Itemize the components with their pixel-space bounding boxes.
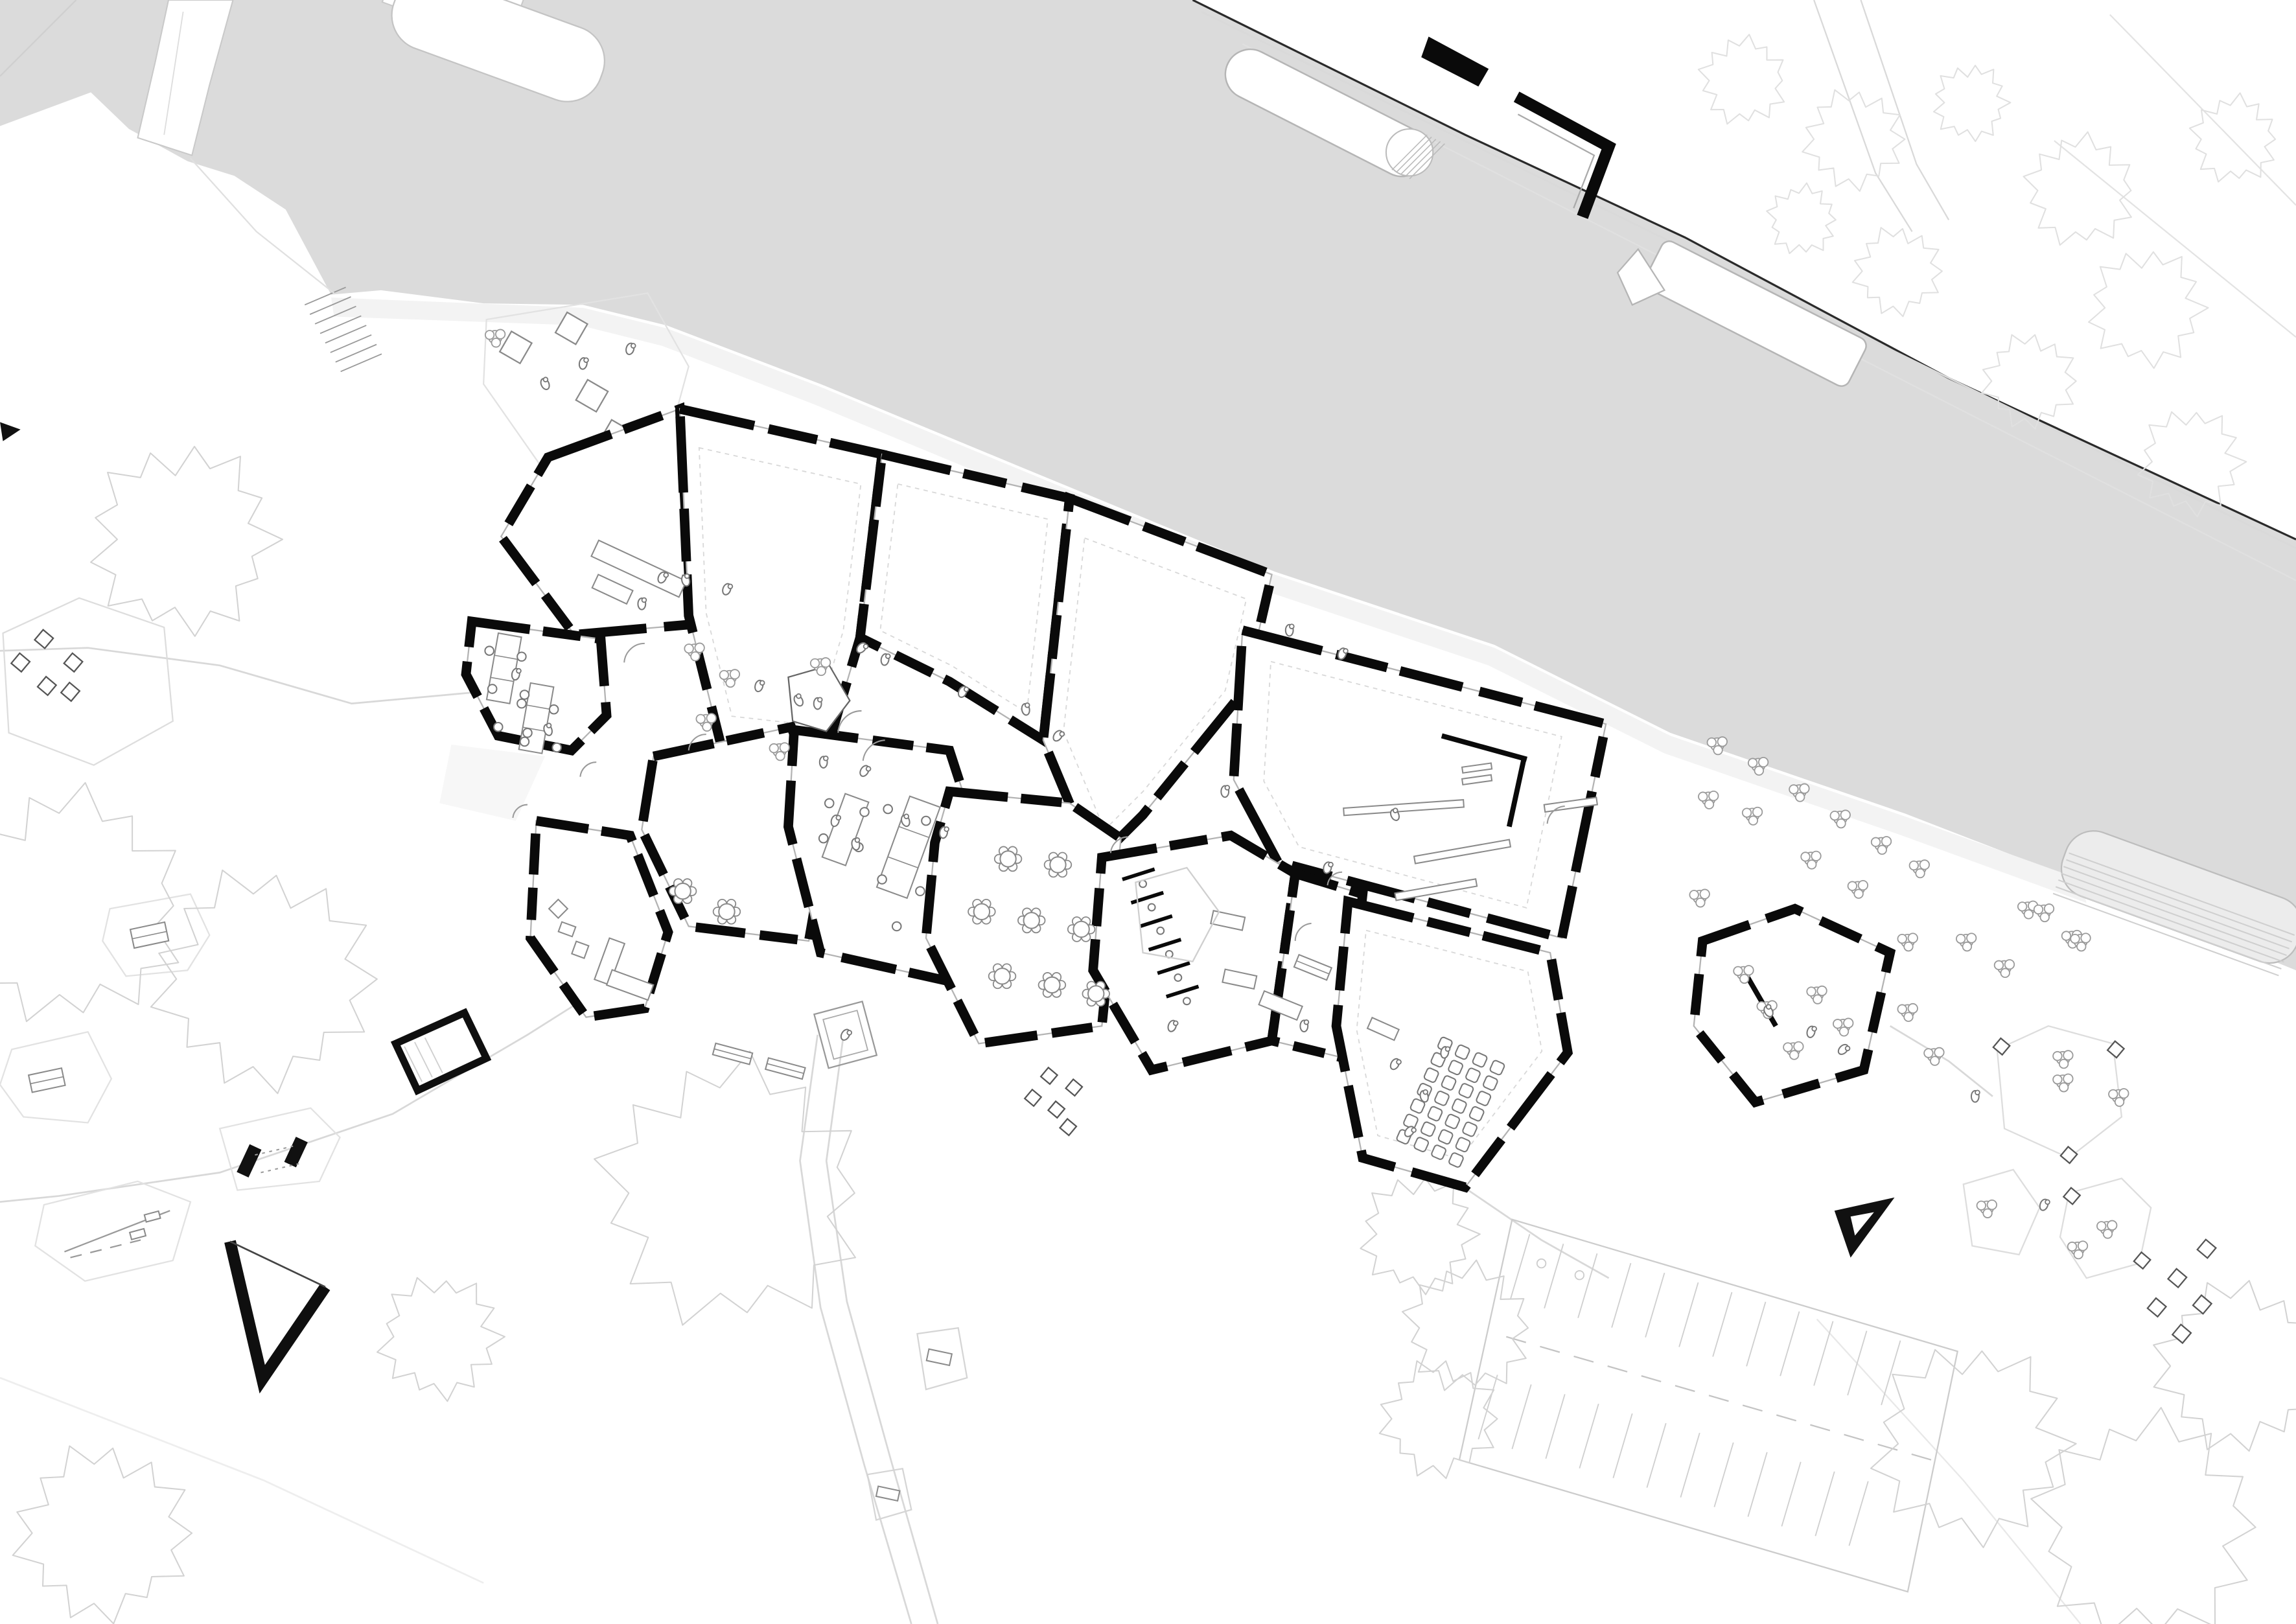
furniture <box>145 1211 161 1222</box>
bush-circle <box>2077 942 2086 951</box>
bush-circle <box>2063 1074 2072 1083</box>
bush-circle <box>702 723 712 732</box>
parking-stalls <box>1679 1282 1698 1347</box>
bush-circle <box>2109 1090 2118 1099</box>
person <box>1286 624 1294 636</box>
stepping-diamond <box>34 630 53 649</box>
bush <box>2034 904 2054 922</box>
stepping-diamond <box>1025 1089 1041 1106</box>
bush-circle <box>730 669 739 679</box>
bush-circle <box>2053 1052 2062 1061</box>
bush-circle <box>1807 860 1816 869</box>
wc-fixture <box>1174 974 1181 981</box>
bush-circle <box>1844 1018 1853 1027</box>
bush <box>2097 1221 2117 1238</box>
bush-circle <box>1755 766 1764 775</box>
chair <box>517 699 526 708</box>
chair <box>892 922 901 931</box>
parking-aisle-dashed <box>1506 1337 1931 1460</box>
bush <box>1872 837 1892 854</box>
bush-circle <box>2070 934 2080 944</box>
footpath <box>0 1378 483 1583</box>
stepping-diamond <box>1060 1119 1076 1135</box>
stepping-diamond <box>2172 1325 2191 1343</box>
far-bank-tree <box>1699 34 1784 124</box>
parking-stalls <box>1645 1273 1664 1338</box>
parking-stalls <box>1814 1321 1833 1386</box>
stepping-diamond <box>64 653 83 672</box>
large-tree <box>1402 1260 1528 1391</box>
sand-play-square <box>576 380 608 412</box>
bush-circle <box>1920 860 1929 869</box>
bush-circle <box>1904 1012 1913 1021</box>
person-head <box>824 756 828 761</box>
site-plan-svg <box>0 0 2296 1624</box>
parking-stalls <box>1781 1462 1800 1527</box>
parking-stalls <box>1512 1384 1531 1449</box>
furniture <box>927 1349 952 1365</box>
stepping-diamond <box>2107 1041 2124 1058</box>
bush-circle <box>1700 889 1709 898</box>
parking-stalls <box>1613 1413 1632 1478</box>
large-tree <box>13 1446 192 1623</box>
chair <box>520 690 529 699</box>
table-top <box>994 968 1010 984</box>
bush-circle <box>492 338 501 347</box>
bush-circle <box>1924 1049 1933 1058</box>
bush-circle <box>2078 1241 2087 1250</box>
bush-circle <box>2063 1050 2072 1060</box>
stepping-diamond <box>2061 1146 2077 1163</box>
bush-circle <box>1830 811 1839 820</box>
person-head <box>631 343 636 348</box>
person-head <box>642 598 647 603</box>
large-tree <box>1380 1361 1498 1478</box>
bush-circle <box>2104 1229 2113 1238</box>
stepping-diamond <box>1041 1067 1057 1084</box>
stepping-diamond <box>38 677 56 695</box>
bush <box>1956 933 1977 951</box>
stepping-diamond <box>61 682 80 701</box>
chair <box>494 723 503 732</box>
bush-circle <box>1916 869 1925 878</box>
furniture <box>713 1043 752 1065</box>
parking-stalls <box>1748 1452 1767 1517</box>
terrace-pad <box>439 745 545 821</box>
chair <box>819 834 828 843</box>
person-head <box>516 668 522 673</box>
bush-circle <box>1796 793 1805 802</box>
bush-circle <box>1713 746 1722 755</box>
bush-circle <box>1897 1004 1907 1014</box>
person-head <box>1225 785 1229 790</box>
room-toilets-glazing <box>1093 835 1295 1070</box>
bush-circle <box>1840 1027 1849 1036</box>
stepping-diamond <box>11 653 30 672</box>
person-head <box>944 827 949 832</box>
table-top <box>675 883 690 899</box>
furniture <box>130 1229 146 1240</box>
bush-circle <box>696 715 705 724</box>
table-top <box>1000 851 1015 866</box>
bush-circle <box>726 679 735 688</box>
bush-circle <box>1967 933 1976 942</box>
bush-circle <box>2059 1083 2069 1092</box>
stepping-diamond <box>1066 1079 1082 1095</box>
person-head <box>1811 1026 1816 1031</box>
stepping-diamond <box>1041 1067 1057 1084</box>
chair <box>485 646 494 655</box>
footpath <box>1890 1026 1993 1096</box>
play-pad-hexagon <box>3 598 173 765</box>
person-head <box>1305 1020 1309 1025</box>
bush-circle <box>1740 975 1749 984</box>
person-head <box>1025 702 1030 708</box>
bush-circle <box>2000 969 2010 978</box>
bush-circle <box>1837 819 1846 828</box>
large-tree <box>91 447 283 636</box>
stepping-diamond <box>1993 1038 2010 1054</box>
stepping-diamond <box>2134 1252 2150 1268</box>
round-table <box>1039 973 1066 997</box>
door-arc <box>624 644 645 662</box>
bush-circle <box>1908 1004 1918 1013</box>
large-tree <box>594 1051 855 1325</box>
bush-circle <box>1848 881 1857 890</box>
parking-stalls <box>1511 1234 1529 1299</box>
far-bank-tree <box>2190 93 2275 182</box>
bush <box>2109 1089 2129 1106</box>
bush-circle <box>1817 986 1826 995</box>
bush <box>1830 810 1850 828</box>
bush-circle <box>811 659 820 668</box>
bush-circle <box>1790 1050 1799 1060</box>
person-head <box>818 697 822 702</box>
hall-1-glazing <box>680 409 882 756</box>
bush-circle <box>1859 881 1868 890</box>
disabled-parking-symbol <box>1575 1271 1584 1280</box>
round-table <box>968 899 995 924</box>
bush-circle <box>1734 967 1743 976</box>
footpath <box>826 1032 938 1624</box>
person <box>880 653 890 666</box>
chair <box>488 684 497 693</box>
bush-circle <box>1718 737 1727 746</box>
bush-circle <box>1689 890 1699 899</box>
round-table <box>995 846 1022 871</box>
large-tree <box>1360 1178 1480 1294</box>
parking-stalls <box>1849 1481 1868 1546</box>
stepping-diamond <box>2168 1269 2187 1288</box>
stepping-diamond <box>38 677 56 695</box>
table-top <box>974 904 990 920</box>
person <box>1971 1091 1980 1102</box>
wc-fixture <box>1183 997 1190 1004</box>
stepping-diamond <box>1993 1038 2010 1054</box>
stepping-diamond <box>2148 1298 2166 1317</box>
play-pad <box>1964 1170 2040 1255</box>
stepping-diamond <box>2197 1240 2216 1259</box>
stepping-diamond <box>61 682 80 701</box>
bush-circle <box>1753 807 1762 817</box>
stepping-diamond <box>1025 1089 1041 1106</box>
person-head <box>885 654 890 659</box>
small-arrow-marker <box>0 422 21 441</box>
bush-circle <box>2097 1222 2106 1231</box>
person <box>579 357 589 370</box>
bush-circle <box>780 743 789 752</box>
person-head <box>1445 1047 1450 1052</box>
door-arc <box>580 762 596 777</box>
person-head <box>1975 1091 1980 1095</box>
large-tree <box>1871 1350 2076 1548</box>
bush-circle <box>769 744 778 753</box>
stepping-diamond <box>2168 1269 2187 1288</box>
bush-circle <box>1854 889 1863 898</box>
bush-circle <box>776 752 785 761</box>
parking-stalls <box>1546 1394 1564 1459</box>
stepping-diamond <box>34 630 53 649</box>
chair <box>877 875 887 884</box>
furniture <box>876 1486 899 1501</box>
chair <box>520 737 529 747</box>
bush <box>1897 1004 1918 1021</box>
stepping-diamond <box>1066 1079 1082 1095</box>
parking-stalls <box>1881 1341 1900 1406</box>
bush-circle <box>1800 784 1809 793</box>
bush-circle <box>1995 961 2004 970</box>
large-tree <box>151 870 377 1094</box>
bush-circle <box>817 667 826 676</box>
site-plan <box>0 0 2296 1624</box>
person <box>638 598 646 610</box>
bush-circle <box>1813 995 1822 1004</box>
parking-stalls <box>1713 1292 1732 1357</box>
bush-circle <box>1910 861 1919 870</box>
round-table <box>1068 917 1095 942</box>
bush-circle <box>1696 898 1705 907</box>
chair <box>552 743 561 752</box>
person <box>820 756 828 768</box>
bush-circle <box>691 652 700 661</box>
stepping-diamond <box>2148 1298 2166 1317</box>
person <box>839 1028 852 1042</box>
parking-stalls <box>1647 1423 1665 1488</box>
bush-circle <box>1841 810 1850 819</box>
chair <box>922 817 931 826</box>
bush <box>1699 791 1719 809</box>
rope-bridge-post <box>285 1137 307 1166</box>
bush-circle <box>2040 913 2049 922</box>
stepping-diamond <box>1048 1101 1064 1117</box>
bush-circle <box>1783 1043 1792 1052</box>
parking-lot <box>1459 1220 1958 1592</box>
bush-circle <box>1749 816 1758 825</box>
footpath <box>800 1035 912 1624</box>
round-table <box>1045 852 1072 877</box>
stepping-diamond <box>2134 1252 2150 1268</box>
chair <box>523 728 532 737</box>
far-bank-tree <box>2023 132 2131 246</box>
chair <box>517 652 526 661</box>
bush-circle <box>1833 1019 1842 1028</box>
bush-circle <box>1908 933 1918 942</box>
bush <box>1897 933 1918 951</box>
round-table <box>989 964 1016 988</box>
triangle-play-structure <box>230 1242 325 1380</box>
bush <box>485 329 505 347</box>
zipline-dashes <box>71 1240 141 1257</box>
river-water <box>0 0 2296 970</box>
far-bank-field-line <box>2054 141 2296 337</box>
bush-circle <box>2119 1089 2128 1098</box>
chair <box>550 705 559 714</box>
person-head <box>684 574 690 579</box>
bush-circle <box>1977 1201 1986 1210</box>
person <box>1300 1020 1308 1032</box>
person <box>539 377 551 391</box>
stepping-diamond <box>2197 1240 2216 1259</box>
far-bank-tree <box>2089 252 2209 368</box>
bush <box>1995 960 2015 977</box>
bush <box>1848 881 1868 898</box>
far-bank-tree <box>1767 183 1836 253</box>
far-bank-tree <box>1853 227 1942 316</box>
bush <box>1689 889 1710 907</box>
far-bank-road-edge <box>1814 0 1912 231</box>
bush-circle <box>2081 933 2090 942</box>
round-table <box>1082 982 1109 1006</box>
bush-circle <box>1988 1200 1997 1209</box>
bush-circle <box>1743 808 1752 817</box>
bush-circle <box>2062 931 2071 940</box>
person-head <box>760 680 765 686</box>
large-tree <box>377 1278 505 1402</box>
bush-circle <box>1897 934 1907 944</box>
bush-circle <box>2018 902 2027 911</box>
chair <box>860 807 869 817</box>
large-tree <box>2153 1281 2296 1451</box>
bush-circle <box>1744 966 1753 975</box>
bush <box>1801 852 1821 869</box>
bush-circle <box>1759 758 1768 767</box>
bush-circle <box>2045 904 2054 913</box>
stepping-diamond <box>2193 1295 2212 1314</box>
stepping-diamond <box>64 653 83 672</box>
bush-circle <box>1956 934 1966 944</box>
person-head <box>1290 624 1294 629</box>
bush-circle <box>821 658 830 667</box>
furniture <box>765 1058 805 1079</box>
bush-circle <box>2115 1098 2124 1107</box>
parking-stalls <box>1780 1312 1799 1376</box>
round-table <box>713 899 741 924</box>
person <box>625 342 636 356</box>
bush <box>1977 1200 1997 1218</box>
stepping-diamond <box>2107 1041 2124 1058</box>
person-head <box>855 837 860 842</box>
bush-circle <box>1934 1048 1943 1057</box>
table-top <box>719 904 734 920</box>
stepping-diamond <box>11 653 30 672</box>
rope-bridge-post <box>285 1137 307 1166</box>
bush-circle <box>706 713 715 723</box>
bush-circle <box>1748 758 1757 767</box>
table-top <box>1044 977 1060 993</box>
table-top <box>1024 912 1039 928</box>
wc-fixture <box>1148 904 1155 911</box>
bush-circle <box>1708 738 1717 747</box>
stepping-diamond <box>2061 1146 2077 1163</box>
bush-circle <box>2034 905 2043 914</box>
disabled-parking-symbol <box>1537 1259 1546 1268</box>
table-top <box>1073 922 1089 937</box>
bush-circle <box>2074 1250 2083 1259</box>
rope-bridge-post <box>238 1145 261 1177</box>
far-bank-tree <box>1802 90 1905 191</box>
bush-circle <box>1882 837 1891 846</box>
furniture <box>145 1211 161 1222</box>
bush-circle <box>2068 1242 2077 1251</box>
bush-circle <box>720 671 729 680</box>
person <box>1221 785 1229 797</box>
bush-circle <box>695 643 704 652</box>
wc-fixture <box>1157 927 1164 934</box>
person-head <box>584 358 589 363</box>
table-top <box>1050 857 1065 872</box>
black-frame-structure <box>395 1013 486 1091</box>
bush-circle <box>1705 800 1714 809</box>
parking-stalls <box>1714 1443 1733 1507</box>
bush-circle <box>1877 846 1886 855</box>
furniture <box>927 1349 952 1365</box>
bush-circle <box>1983 1209 1992 1218</box>
bush-circle <box>1801 852 1810 861</box>
chair <box>916 887 925 896</box>
person-head <box>836 815 841 820</box>
bush-circle <box>1811 852 1820 861</box>
chair <box>825 799 834 808</box>
chair <box>883 805 892 814</box>
furniture <box>130 1229 146 1240</box>
table-top <box>1088 986 1104 1001</box>
stepping-diamond <box>2193 1295 2212 1314</box>
parking-stalls <box>1544 1244 1563 1308</box>
black-triangle-marker <box>1835 1198 1895 1258</box>
play-pad-hexagon <box>1997 1026 2122 1158</box>
person-head <box>1423 1089 1428 1095</box>
bush-circle <box>1807 987 1816 996</box>
person-head <box>1328 862 1333 867</box>
furniture <box>29 1068 65 1092</box>
bush-circle <box>2107 1221 2116 1230</box>
parking-stalls <box>1848 1331 1866 1396</box>
large-tree <box>0 783 178 1021</box>
parking-stalls <box>1478 1375 1497 1440</box>
round-table <box>1018 908 1045 933</box>
rope-bridge-post <box>238 1145 261 1177</box>
bush <box>2053 1074 2073 1091</box>
parking-stalls <box>1680 1433 1699 1498</box>
bush-circle <box>2005 960 2014 969</box>
bush <box>2068 1241 2088 1259</box>
bush-circle <box>1709 791 1718 800</box>
bush-circle <box>1904 942 1913 951</box>
bush <box>1743 807 1763 825</box>
bush-circle <box>1794 1042 1803 1051</box>
bush-circle <box>1699 792 1708 801</box>
bush <box>1910 860 1930 877</box>
